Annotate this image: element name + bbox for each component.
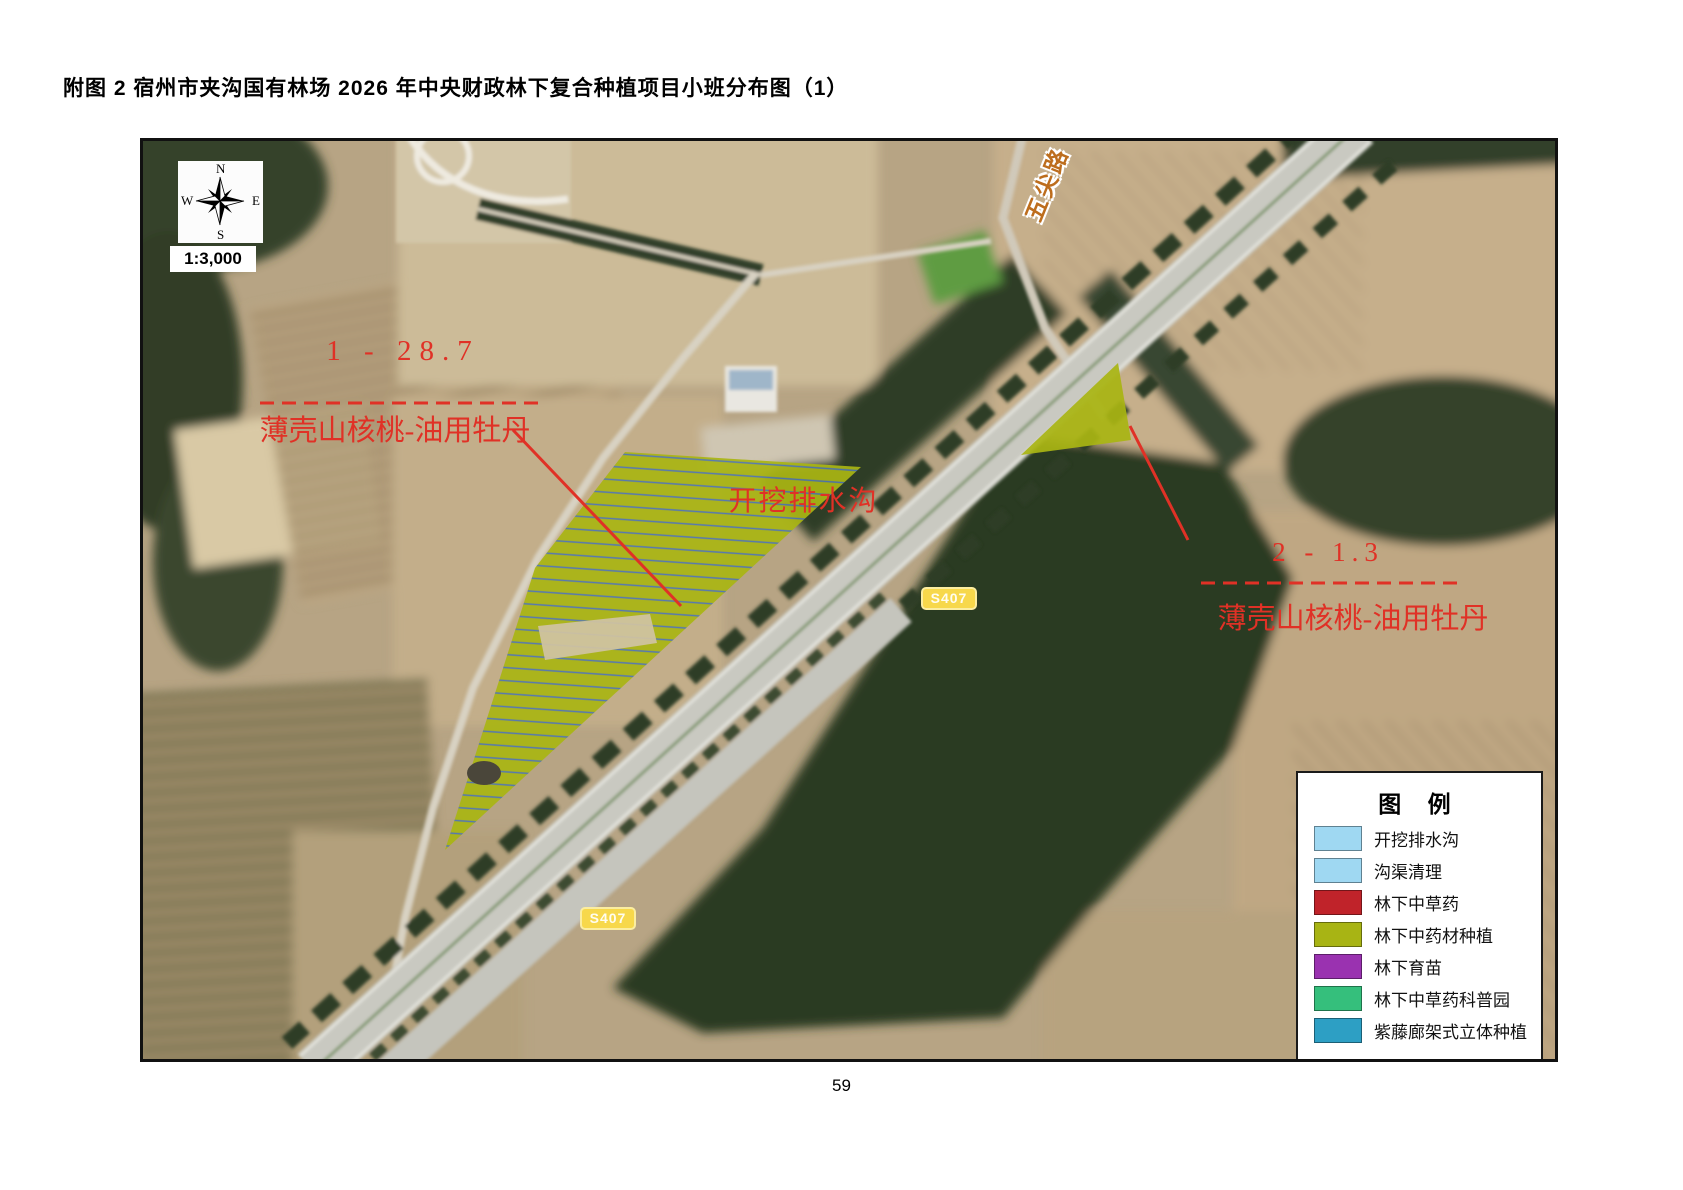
legend-item: 紫藤廊架式立体种植 xyxy=(1314,1018,1541,1043)
map-frame: N S W E 1:3,000 1 - 28.7 薄壳山核桃-油用牡丹 xyxy=(140,138,1558,1062)
compass-rose: N S W E xyxy=(178,161,263,243)
compass-star-icon xyxy=(194,175,246,227)
legend-item: 林下育苗 xyxy=(1314,954,1541,979)
legend-item: 林下中草药科普园 xyxy=(1314,986,1541,1011)
compass-south-label: S xyxy=(217,227,224,243)
plot1-species-label: 薄壳山核桃-油用牡丹 xyxy=(235,407,555,449)
route-badge-s407-lower: S407 xyxy=(580,907,636,930)
map-legend: 图 例 开挖排水沟 沟渠清理 林下中草药 林下中药材种植 林下育苗 xyxy=(1296,771,1543,1061)
legend-item-label: 林下中药材种植 xyxy=(1374,922,1493,947)
legend-swatch xyxy=(1314,858,1362,883)
compass-east-label: E xyxy=(252,193,260,209)
legend-swatch xyxy=(1314,1018,1362,1043)
legend-item: 沟渠清理 xyxy=(1314,858,1541,883)
legend-item-label: 开挖排水沟 xyxy=(1374,826,1459,851)
legend-item: 林下中药材种植 xyxy=(1314,922,1541,947)
plot2-species-label: 薄壳山核桃-油用牡丹 xyxy=(1191,595,1515,637)
legend-item-label: 沟渠清理 xyxy=(1374,858,1442,883)
compass-west-label: W xyxy=(181,193,193,209)
page-number: 59 xyxy=(0,1076,1683,1096)
plot1-code-label: 1 - 28.7 xyxy=(263,335,543,368)
legend-swatch xyxy=(1314,986,1362,1011)
legend-swatch xyxy=(1314,954,1362,979)
legend-item: 开挖排水沟 xyxy=(1314,826,1541,851)
plot2-code-label: 2 - 1.3 xyxy=(1243,537,1413,568)
legend-swatch xyxy=(1314,890,1362,915)
legend-title: 图 例 xyxy=(1298,785,1541,819)
legend-item-label: 林下中草药 xyxy=(1374,890,1459,915)
route-badge-s407-upper: S407 xyxy=(921,587,977,610)
legend-item: 林下中草药 xyxy=(1314,890,1541,915)
figure-title: 附图 2 宿州市夹沟国有林场 2026 年中央财政林下复合种植项目小班分布图（1… xyxy=(63,72,848,102)
legend-item-label: 林下育苗 xyxy=(1374,954,1442,979)
ditch-annotation-label: 开挖排水沟 xyxy=(711,479,896,519)
plot1-pond xyxy=(467,761,501,785)
legend-swatch xyxy=(1314,826,1362,851)
scale-indicator: 1:3,000 xyxy=(170,246,256,272)
legend-swatch xyxy=(1314,922,1362,947)
legend-item-label: 紫藤廊架式立体种植 xyxy=(1374,1018,1527,1043)
document-page: 附图 2 宿州市夹沟国有林场 2026 年中央财政林下复合种植项目小班分布图（1… xyxy=(0,0,1683,1190)
legend-item-label: 林下中草药科普园 xyxy=(1374,986,1510,1011)
